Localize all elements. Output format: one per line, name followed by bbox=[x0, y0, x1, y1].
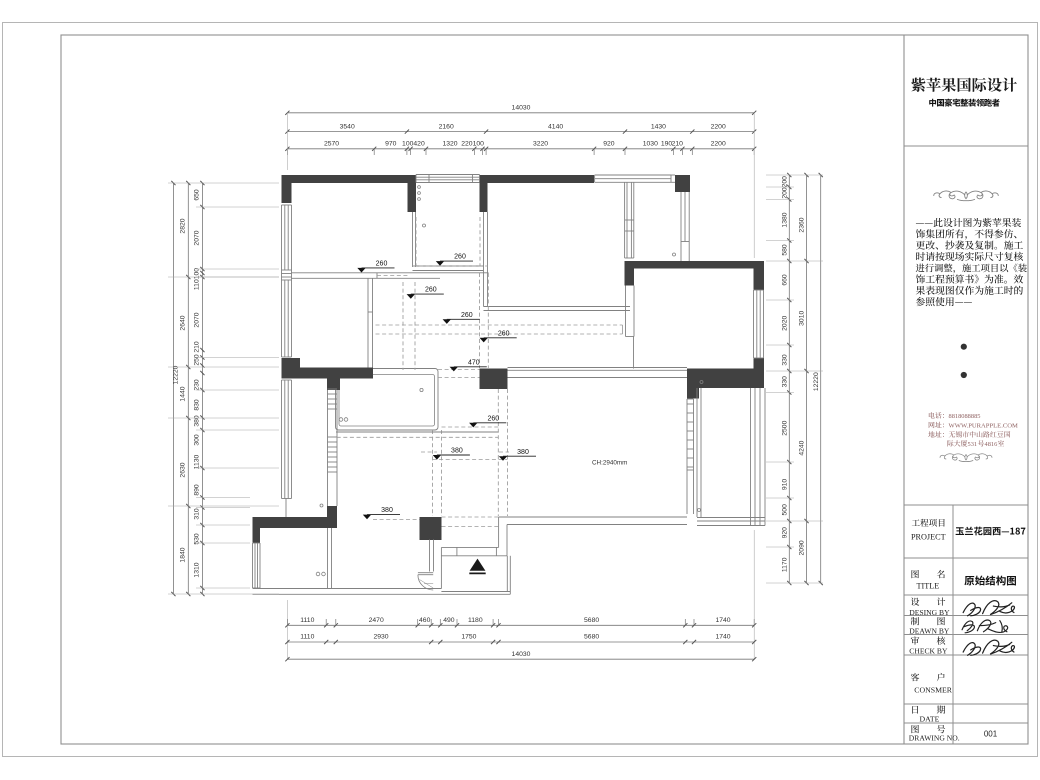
svg-text:330: 330 bbox=[781, 376, 788, 388]
svg-text:250: 250 bbox=[194, 354, 201, 366]
svg-text:260: 260 bbox=[425, 287, 437, 294]
svg-text:830: 830 bbox=[194, 399, 201, 411]
svg-text:260: 260 bbox=[461, 312, 473, 319]
svg-text:2640: 2640 bbox=[180, 315, 187, 330]
svg-text:5680: 5680 bbox=[584, 634, 599, 641]
svg-text:260: 260 bbox=[498, 330, 510, 337]
svg-text:2630: 2630 bbox=[180, 462, 187, 477]
svg-text:660: 660 bbox=[781, 274, 788, 286]
svg-text:230: 230 bbox=[194, 379, 201, 391]
svg-text:1440: 1440 bbox=[180, 386, 187, 401]
svg-text:2200: 2200 bbox=[711, 123, 726, 130]
svg-text:200: 200 bbox=[781, 176, 788, 188]
svg-text:001: 001 bbox=[984, 730, 998, 739]
svg-text:5680: 5680 bbox=[584, 617, 599, 624]
svg-text:PROJECT: PROJECT bbox=[911, 533, 946, 542]
svg-text:650: 650 bbox=[194, 189, 201, 201]
svg-text:2470: 2470 bbox=[369, 617, 384, 624]
svg-text:2070: 2070 bbox=[194, 230, 201, 245]
svg-text:220100: 220100 bbox=[461, 141, 484, 148]
svg-text:2500: 2500 bbox=[781, 420, 788, 435]
svg-text:TITLE: TITLE bbox=[917, 582, 940, 591]
svg-text:1430: 1430 bbox=[651, 123, 666, 130]
svg-text:DESING BY: DESING BY bbox=[909, 608, 950, 617]
svg-text:1840: 1840 bbox=[180, 547, 187, 562]
svg-text:2160: 2160 bbox=[439, 123, 454, 130]
svg-text:260: 260 bbox=[487, 415, 499, 422]
svg-text:210: 210 bbox=[672, 141, 684, 148]
svg-text:110100: 110100 bbox=[194, 268, 201, 290]
svg-text:2820: 2820 bbox=[180, 218, 187, 233]
svg-text:2930: 2930 bbox=[373, 634, 388, 641]
svg-text:3220: 3220 bbox=[533, 141, 548, 148]
svg-text:4140: 4140 bbox=[548, 123, 563, 130]
svg-text:490: 490 bbox=[443, 617, 455, 624]
svg-text:210: 210 bbox=[194, 341, 201, 353]
svg-text:2360: 2360 bbox=[799, 217, 806, 232]
svg-text:14030: 14030 bbox=[512, 651, 531, 658]
svg-text:1750: 1750 bbox=[461, 634, 476, 641]
svg-text:1170: 1170 bbox=[781, 557, 788, 572]
svg-text:DEAWN BY: DEAWN BY bbox=[909, 626, 950, 635]
svg-text:CONSMER: CONSMER bbox=[914, 686, 952, 695]
svg-text:1180: 1180 bbox=[468, 617, 483, 624]
svg-text:200: 200 bbox=[781, 187, 788, 199]
svg-text:1030: 1030 bbox=[643, 141, 658, 148]
svg-text:470: 470 bbox=[468, 359, 480, 366]
svg-text:531: 531 bbox=[968, 441, 978, 448]
svg-text:260: 260 bbox=[454, 254, 466, 261]
svg-text:300: 300 bbox=[194, 434, 201, 446]
svg-text:330: 330 bbox=[781, 354, 788, 366]
svg-text:380: 380 bbox=[381, 507, 393, 514]
svg-text:3540: 3540 bbox=[340, 123, 355, 130]
svg-text:1740: 1740 bbox=[715, 634, 730, 641]
svg-text:100420: 100420 bbox=[402, 141, 425, 148]
svg-text:2020: 2020 bbox=[781, 316, 788, 331]
svg-text:2200: 2200 bbox=[711, 141, 726, 148]
svg-text:920: 920 bbox=[781, 527, 788, 539]
svg-text:14030: 14030 bbox=[512, 105, 531, 112]
svg-text:1740: 1740 bbox=[715, 617, 730, 624]
svg-text:1110: 1110 bbox=[300, 634, 314, 641]
svg-text:3010: 3010 bbox=[799, 311, 806, 326]
svg-text:1110: 1110 bbox=[300, 617, 314, 624]
svg-text:WWW.PURAPPLE.COM: WWW.PURAPPLE.COM bbox=[949, 423, 1018, 430]
svg-text:2090: 2090 bbox=[799, 540, 806, 555]
svg-text:380: 380 bbox=[451, 448, 463, 455]
svg-text:920: 920 bbox=[603, 141, 615, 148]
svg-text:1380: 1380 bbox=[781, 212, 788, 227]
svg-text:1320: 1320 bbox=[442, 141, 457, 148]
svg-text:12220: 12220 bbox=[813, 372, 820, 391]
svg-text:380: 380 bbox=[194, 415, 201, 427]
svg-text:970: 970 bbox=[385, 141, 397, 148]
svg-text:2570: 2570 bbox=[324, 141, 339, 148]
svg-text:12220: 12220 bbox=[173, 365, 180, 384]
svg-text:CH:2940mm: CH:2940mm bbox=[592, 460, 627, 467]
svg-text:2070: 2070 bbox=[194, 312, 201, 327]
svg-text:4240: 4240 bbox=[799, 440, 806, 455]
svg-text:910: 910 bbox=[781, 479, 788, 491]
svg-text:310: 310 bbox=[194, 508, 201, 520]
svg-text:580: 580 bbox=[781, 244, 788, 256]
svg-text:460: 460 bbox=[419, 617, 431, 624]
svg-text:DRAWING NO.: DRAWING NO. bbox=[909, 734, 960, 743]
svg-text:DATE: DATE bbox=[920, 715, 940, 724]
svg-text:260: 260 bbox=[376, 261, 388, 268]
svg-text:1130: 1130 bbox=[194, 454, 201, 469]
svg-text:4816: 4816 bbox=[985, 441, 998, 448]
svg-text:CHECK BY: CHECK BY bbox=[909, 646, 948, 655]
svg-text:8818088885: 8818088885 bbox=[949, 413, 981, 420]
svg-text:500: 500 bbox=[781, 504, 788, 516]
svg-text:890: 890 bbox=[194, 484, 201, 496]
svg-text:380: 380 bbox=[517, 449, 529, 456]
svg-text:1310: 1310 bbox=[194, 562, 201, 577]
